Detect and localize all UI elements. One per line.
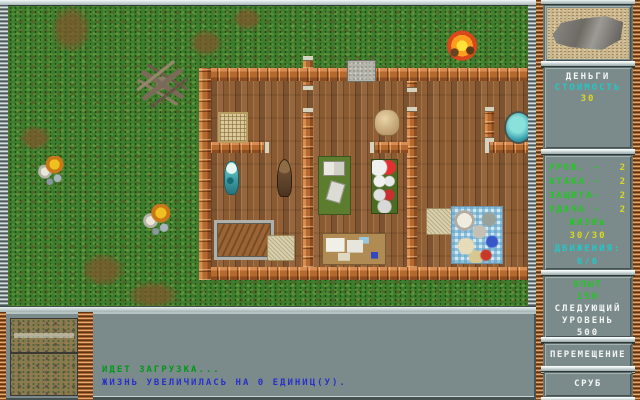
inner-wall xyxy=(303,81,313,90)
map-right-border-column xyxy=(528,5,536,306)
terrain-thumbnail-top[interactable] xyxy=(10,318,78,353)
experience-panel: ОПЫТ 150 СЛЕДУЮЩИЙ УРОВЕНЬ 500 xyxy=(544,276,632,338)
log-cabin-button[interactable]: СРУБ xyxy=(544,372,632,397)
exp-label: ОПЫТ xyxy=(544,279,632,291)
campfire[interactable] xyxy=(445,28,479,62)
dead-tree[interactable] xyxy=(133,58,191,108)
stat-row: УРОВ. -2 xyxy=(544,161,632,175)
moves-value: 6/6 xyxy=(544,256,632,269)
chimney-stub xyxy=(303,56,313,68)
game-map[interactable] xyxy=(8,6,528,306)
dirt-patch xyxy=(52,6,90,52)
terrain-thumbnail-bottom[interactable] xyxy=(10,353,78,396)
cost-label: СТОИМОСТЬ xyxy=(544,83,632,94)
flower-cluster[interactable] xyxy=(36,156,66,186)
next-level-label-1: СЛЕДУЮЩИЙ xyxy=(544,303,632,315)
message-line-loading: ИДЕТ ЗАГРУЗКА... xyxy=(102,365,221,375)
sidebar: ДЕНЬГИ СТОИМОСТЬ 30 УРОВ. -2АТАКА -2ЗАЩИ… xyxy=(536,0,640,400)
message-line-life: ЖИЗНЬ УВЕЛИЧИЛАСЬ НА 0 ЕДИНИЦ(У). xyxy=(102,378,347,388)
house-wall-bottom xyxy=(199,267,528,280)
life-label: ЖИЗНЬ xyxy=(544,217,632,230)
next-level-label-2: УРОВЕНЬ xyxy=(544,315,632,327)
dirt-patch xyxy=(82,254,124,286)
wicker-crate[interactable] xyxy=(218,112,248,143)
stat-row: УДАЧА -2 xyxy=(544,203,632,217)
moves-label: ДВИЖЕНИЯ: xyxy=(544,243,632,256)
wicker-mat[interactable] xyxy=(267,235,295,261)
writing-desk[interactable] xyxy=(318,156,351,215)
dirt-patch xyxy=(233,8,261,30)
dirt-patch xyxy=(128,282,178,306)
stats-panel: УРОВ. -2АТАКА -2ЗАЩИТА-2УДАЧА -2 ЖИЗНЬ 3… xyxy=(544,155,632,270)
inner-wall xyxy=(407,81,417,92)
water-basin[interactable] xyxy=(504,111,528,144)
stat-row: ЗАЩИТА-2 xyxy=(544,189,632,203)
stat-row: АТАКА -2 xyxy=(544,175,632,189)
inner-wall xyxy=(485,107,494,142)
stone-doormat[interactable] xyxy=(347,60,376,82)
flower-cluster[interactable] xyxy=(141,204,173,236)
dirt-patch xyxy=(190,30,222,56)
picnic-blanket[interactable] xyxy=(451,206,503,264)
border-column xyxy=(86,312,93,400)
dirt-patch xyxy=(20,126,50,150)
money-panel: ДЕНЬГИ СТОИМОСТЬ 30 xyxy=(544,67,632,149)
inner-wall xyxy=(407,107,417,267)
hanging-fish[interactable] xyxy=(224,161,239,195)
border-column xyxy=(0,312,6,400)
portrait-background xyxy=(547,8,629,59)
game-screen: ИДЕТ ЗАГРУЗКА... ЖИЗНЬ УВЕЛИЧИЛАСЬ НА 0 … xyxy=(0,0,640,400)
selected-object-portrait-panel xyxy=(544,5,632,62)
exp-value: 150 xyxy=(544,291,632,303)
potion-shelf[interactable] xyxy=(371,159,398,214)
inner-wall xyxy=(370,142,408,153)
inner-wall xyxy=(485,142,528,153)
hanging-fish[interactable] xyxy=(277,159,292,197)
movement-button[interactable]: ПЕРЕМЕЩЕНИЕ xyxy=(544,343,632,368)
money-title: ДЕНЬГИ xyxy=(544,72,632,83)
life-value: 30/30 xyxy=(544,230,632,243)
inner-wall xyxy=(303,108,313,267)
border-column xyxy=(78,312,86,400)
map-table[interactable] xyxy=(322,233,386,265)
straw-mat[interactable] xyxy=(426,208,452,235)
house-wall-left xyxy=(199,68,211,280)
inner-wall xyxy=(211,142,269,153)
stone-portrait-image xyxy=(553,16,624,50)
wooden-trough[interactable] xyxy=(214,220,274,260)
cost-value: 30 xyxy=(544,94,632,105)
grain-sack[interactable] xyxy=(374,109,400,136)
map-left-border-column xyxy=(0,5,8,306)
